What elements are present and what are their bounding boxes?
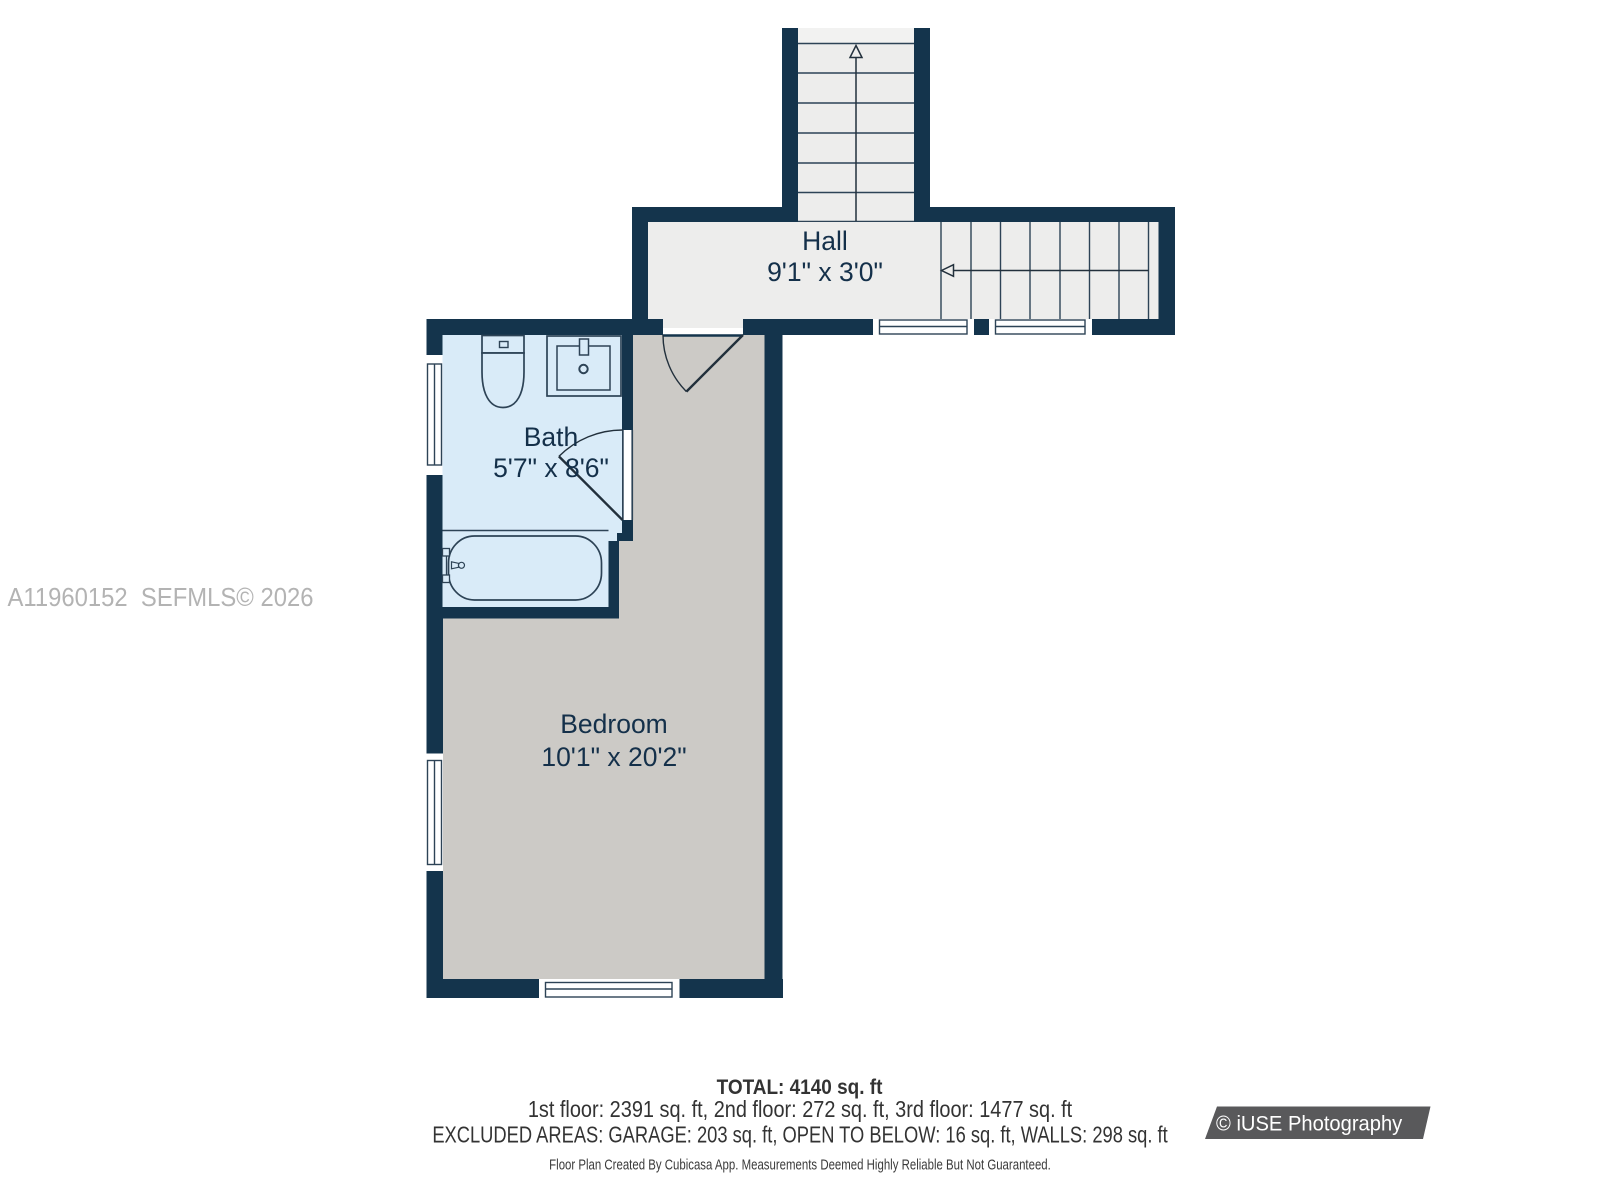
svg-text:© iUSE Photography: © iUSE Photography [1216, 1112, 1403, 1135]
